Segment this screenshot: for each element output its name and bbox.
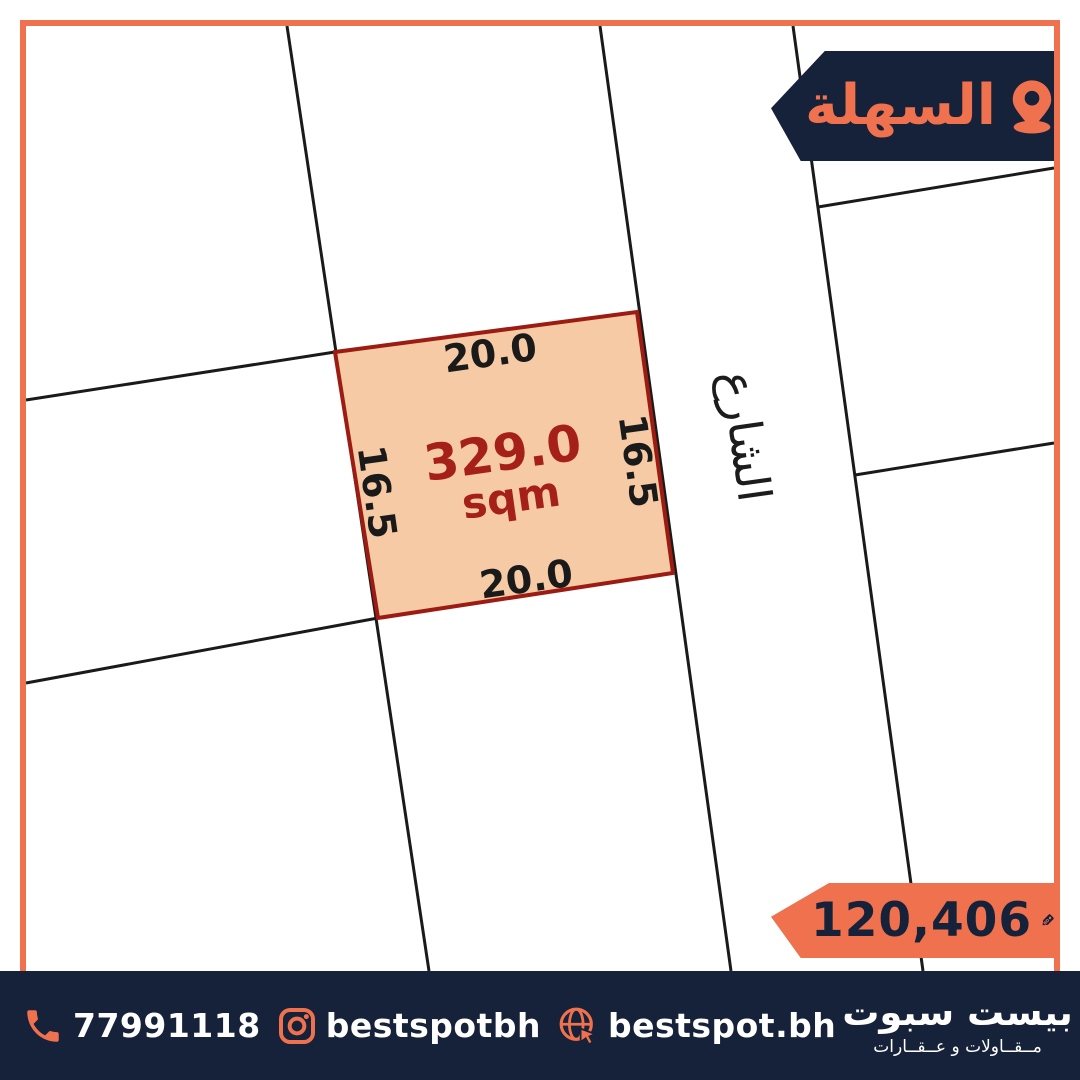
advert-page: 20.0 20.0 16.5 16.5 329.0 sqm الشارع الس… xyxy=(0,0,1080,1080)
street-label: الشارع xyxy=(710,367,782,505)
brand-name: بيست سبوت xyxy=(842,994,1073,1033)
website-url: bestspot.bh xyxy=(608,1006,836,1045)
globe-cursor-icon xyxy=(557,1005,599,1047)
footer-bar: 77991118 bestspotbh bestspot.bh بيست سبو… xyxy=(0,971,1080,1080)
price-amount: 120,406 xyxy=(811,897,1032,944)
parcel-line-right-upper xyxy=(818,168,1054,207)
phone-number: 77991118 xyxy=(73,1006,261,1045)
footer-instagram: bestspotbh xyxy=(277,1006,541,1046)
map-pin-icon xyxy=(1010,77,1054,135)
instagram-icon xyxy=(277,1006,317,1046)
road-edge-right xyxy=(793,26,923,971)
parcel-line-left-upper xyxy=(26,352,335,400)
brand-tagline: مــقــاولات و عــقــارات xyxy=(873,1037,1042,1057)
parcel-line-right-lower xyxy=(855,443,1054,475)
instagram-handle: bestspotbh xyxy=(326,1006,541,1045)
location-banner: السهلة xyxy=(771,51,1054,161)
price-tag-icon: BD xyxy=(1040,889,1054,953)
parcel-line-left-lower xyxy=(26,618,378,683)
footer-website: bestspot.bh xyxy=(557,1005,836,1047)
price-badge: 120,406 BD xyxy=(771,883,1054,958)
footer-phone: 77991118 xyxy=(22,1005,261,1047)
brand-text-block: بيست سبوت مــقــاولات و عــقــارات xyxy=(842,994,1073,1057)
location-name-label: السهلة xyxy=(805,78,996,134)
phone-icon xyxy=(22,1005,64,1047)
